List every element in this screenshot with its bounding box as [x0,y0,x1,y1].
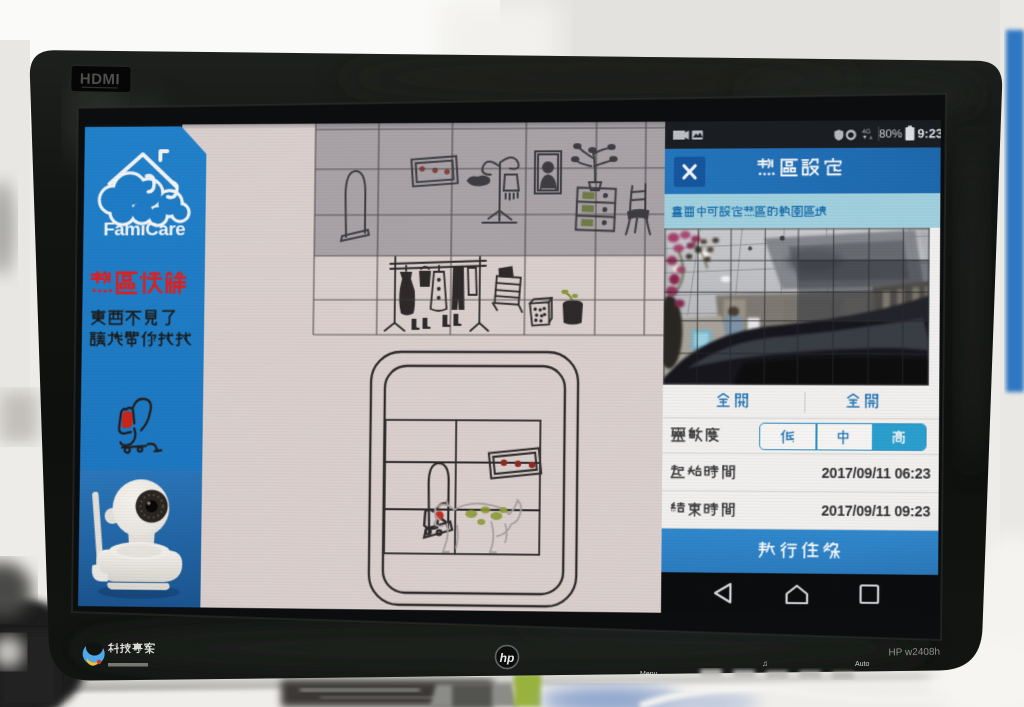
svg-text:HP w2408h: HP w2408h [888,647,940,659]
svg-text:Menu: Menu [640,671,658,678]
svg-text:Auto: Auto [855,661,870,668]
svg-text:hp: hp [500,651,515,665]
svg-text:HDMI: HDMI [80,71,121,89]
svg-text:♫: ♫ [762,659,768,668]
svg-text:80%: 80% [879,128,902,141]
svg-text:9:23: 9:23 [917,126,940,141]
svg-text:4G: 4G [862,128,871,135]
